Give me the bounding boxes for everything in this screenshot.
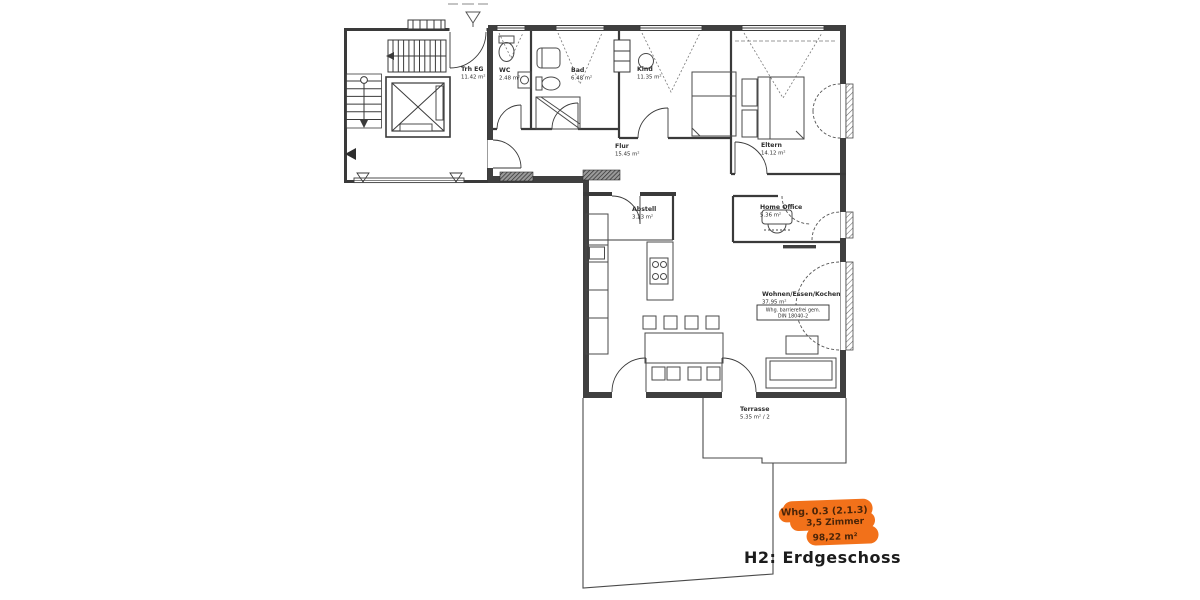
door-terrace-right bbox=[722, 358, 756, 392]
window-bad bbox=[556, 26, 604, 31]
kind-bed bbox=[692, 72, 736, 136]
french-door-living-upper bbox=[796, 262, 840, 306]
eltern-bed bbox=[758, 77, 804, 139]
barrier-free-note: Whg. barrierefrei gem. DIN 18040-2 bbox=[757, 305, 829, 320]
room-label-terrasse: Terrasse bbox=[740, 406, 769, 413]
french-door-eltern-upper bbox=[813, 84, 840, 111]
window-wc bbox=[497, 26, 525, 31]
plan-title: H2: Erdgeschoss bbox=[744, 548, 901, 567]
door-apartment-entry bbox=[493, 140, 521, 168]
stairwell-door bbox=[450, 27, 487, 68]
room-label-wohnen: Wohnen/Essen/Kochen bbox=[762, 291, 841, 298]
window-swing-lines bbox=[499, 33, 836, 98]
bad-shower bbox=[536, 97, 580, 129]
room-area-eltern: 14.12 m² bbox=[761, 150, 786, 157]
room-area-home-office: 5.36 m² bbox=[760, 212, 781, 219]
room-label-flur: Flur bbox=[615, 143, 630, 150]
coffee-table bbox=[786, 336, 818, 354]
room-label-eltern: Eltern bbox=[761, 142, 782, 149]
kitchen-island bbox=[647, 242, 673, 300]
wall-poche bbox=[583, 170, 620, 180]
window-kind bbox=[640, 26, 702, 31]
room-area-trh: 11.42 m² bbox=[461, 74, 486, 81]
room-label-wc: WC bbox=[499, 67, 511, 74]
bad-toilet bbox=[536, 77, 560, 90]
note-line-1: Whg. barrierefrei gem. bbox=[766, 308, 820, 314]
bad-sink bbox=[537, 48, 560, 68]
room-label-home-office: Home Office bbox=[760, 204, 802, 211]
room-area-bad: 6.48 m² bbox=[571, 75, 592, 82]
room-labels: Trh EG 11.42 m² WC 2.48 m² Bad 6.48 m² K… bbox=[461, 66, 841, 421]
unit-highlight-tag: Whg. 0.3 (2.1.3) 3,5 Zimmer 98,22 m² bbox=[778, 498, 879, 546]
room-area-abstell: 3.23 m² bbox=[632, 214, 653, 221]
vent-grille bbox=[408, 20, 445, 29]
duct-shaft bbox=[614, 40, 630, 72]
room-label-bad: Bad bbox=[571, 67, 584, 74]
benchmark-marker-icon bbox=[448, 4, 488, 27]
unit-tag-area: 98,22 m² bbox=[813, 532, 858, 544]
door-terrace-left bbox=[612, 358, 646, 392]
dining-table bbox=[645, 333, 723, 363]
terrace-outline bbox=[703, 398, 846, 463]
window-sills-east bbox=[846, 84, 853, 350]
stair-flight-lower bbox=[347, 74, 382, 128]
entry-threshold bbox=[500, 172, 533, 181]
sofa bbox=[766, 358, 836, 388]
door-kind bbox=[638, 108, 668, 138]
door-wc bbox=[497, 105, 521, 129]
furniture bbox=[499, 36, 836, 388]
room-area-terrasse: 5.35 m² / 2 bbox=[740, 414, 770, 421]
home-office-sideboard bbox=[783, 245, 816, 248]
dining-chairs bbox=[643, 316, 720, 380]
room-label-kind: Kind bbox=[637, 66, 653, 73]
note-line-2: DIN 18040-2 bbox=[778, 314, 808, 320]
room-area-flur: 15.45 m² bbox=[615, 151, 640, 158]
elevator bbox=[386, 77, 450, 137]
floorplan-page: Trh EG 11.42 m² WC 2.48 m² Bad 6.48 m² K… bbox=[0, 0, 1200, 600]
french-door-eltern-lower bbox=[813, 111, 840, 138]
eltern-nightstands bbox=[742, 79, 757, 137]
window-eltern bbox=[742, 26, 824, 31]
floorplan-drawing: Trh EG 11.42 m² WC 2.48 m² Bad 6.48 m² K… bbox=[0, 0, 1200, 600]
doors bbox=[493, 103, 767, 392]
room-label-trh: Trh EG bbox=[461, 66, 483, 73]
kitchen-cabinets bbox=[586, 214, 608, 354]
room-area-wc: 2.48 m² bbox=[499, 75, 520, 82]
stair-flight-upper bbox=[386, 40, 446, 72]
room-label-abstell: Abstell bbox=[632, 206, 656, 213]
window-swing-home-office bbox=[812, 212, 840, 240]
room-area-kind: 11.35 m² bbox=[637, 74, 662, 81]
room-area-wohnen: 37.95 m² bbox=[762, 299, 787, 306]
stairwell-block bbox=[345, 20, 489, 183]
unit-tag-rooms: 3,5 Zimmer bbox=[806, 517, 865, 529]
